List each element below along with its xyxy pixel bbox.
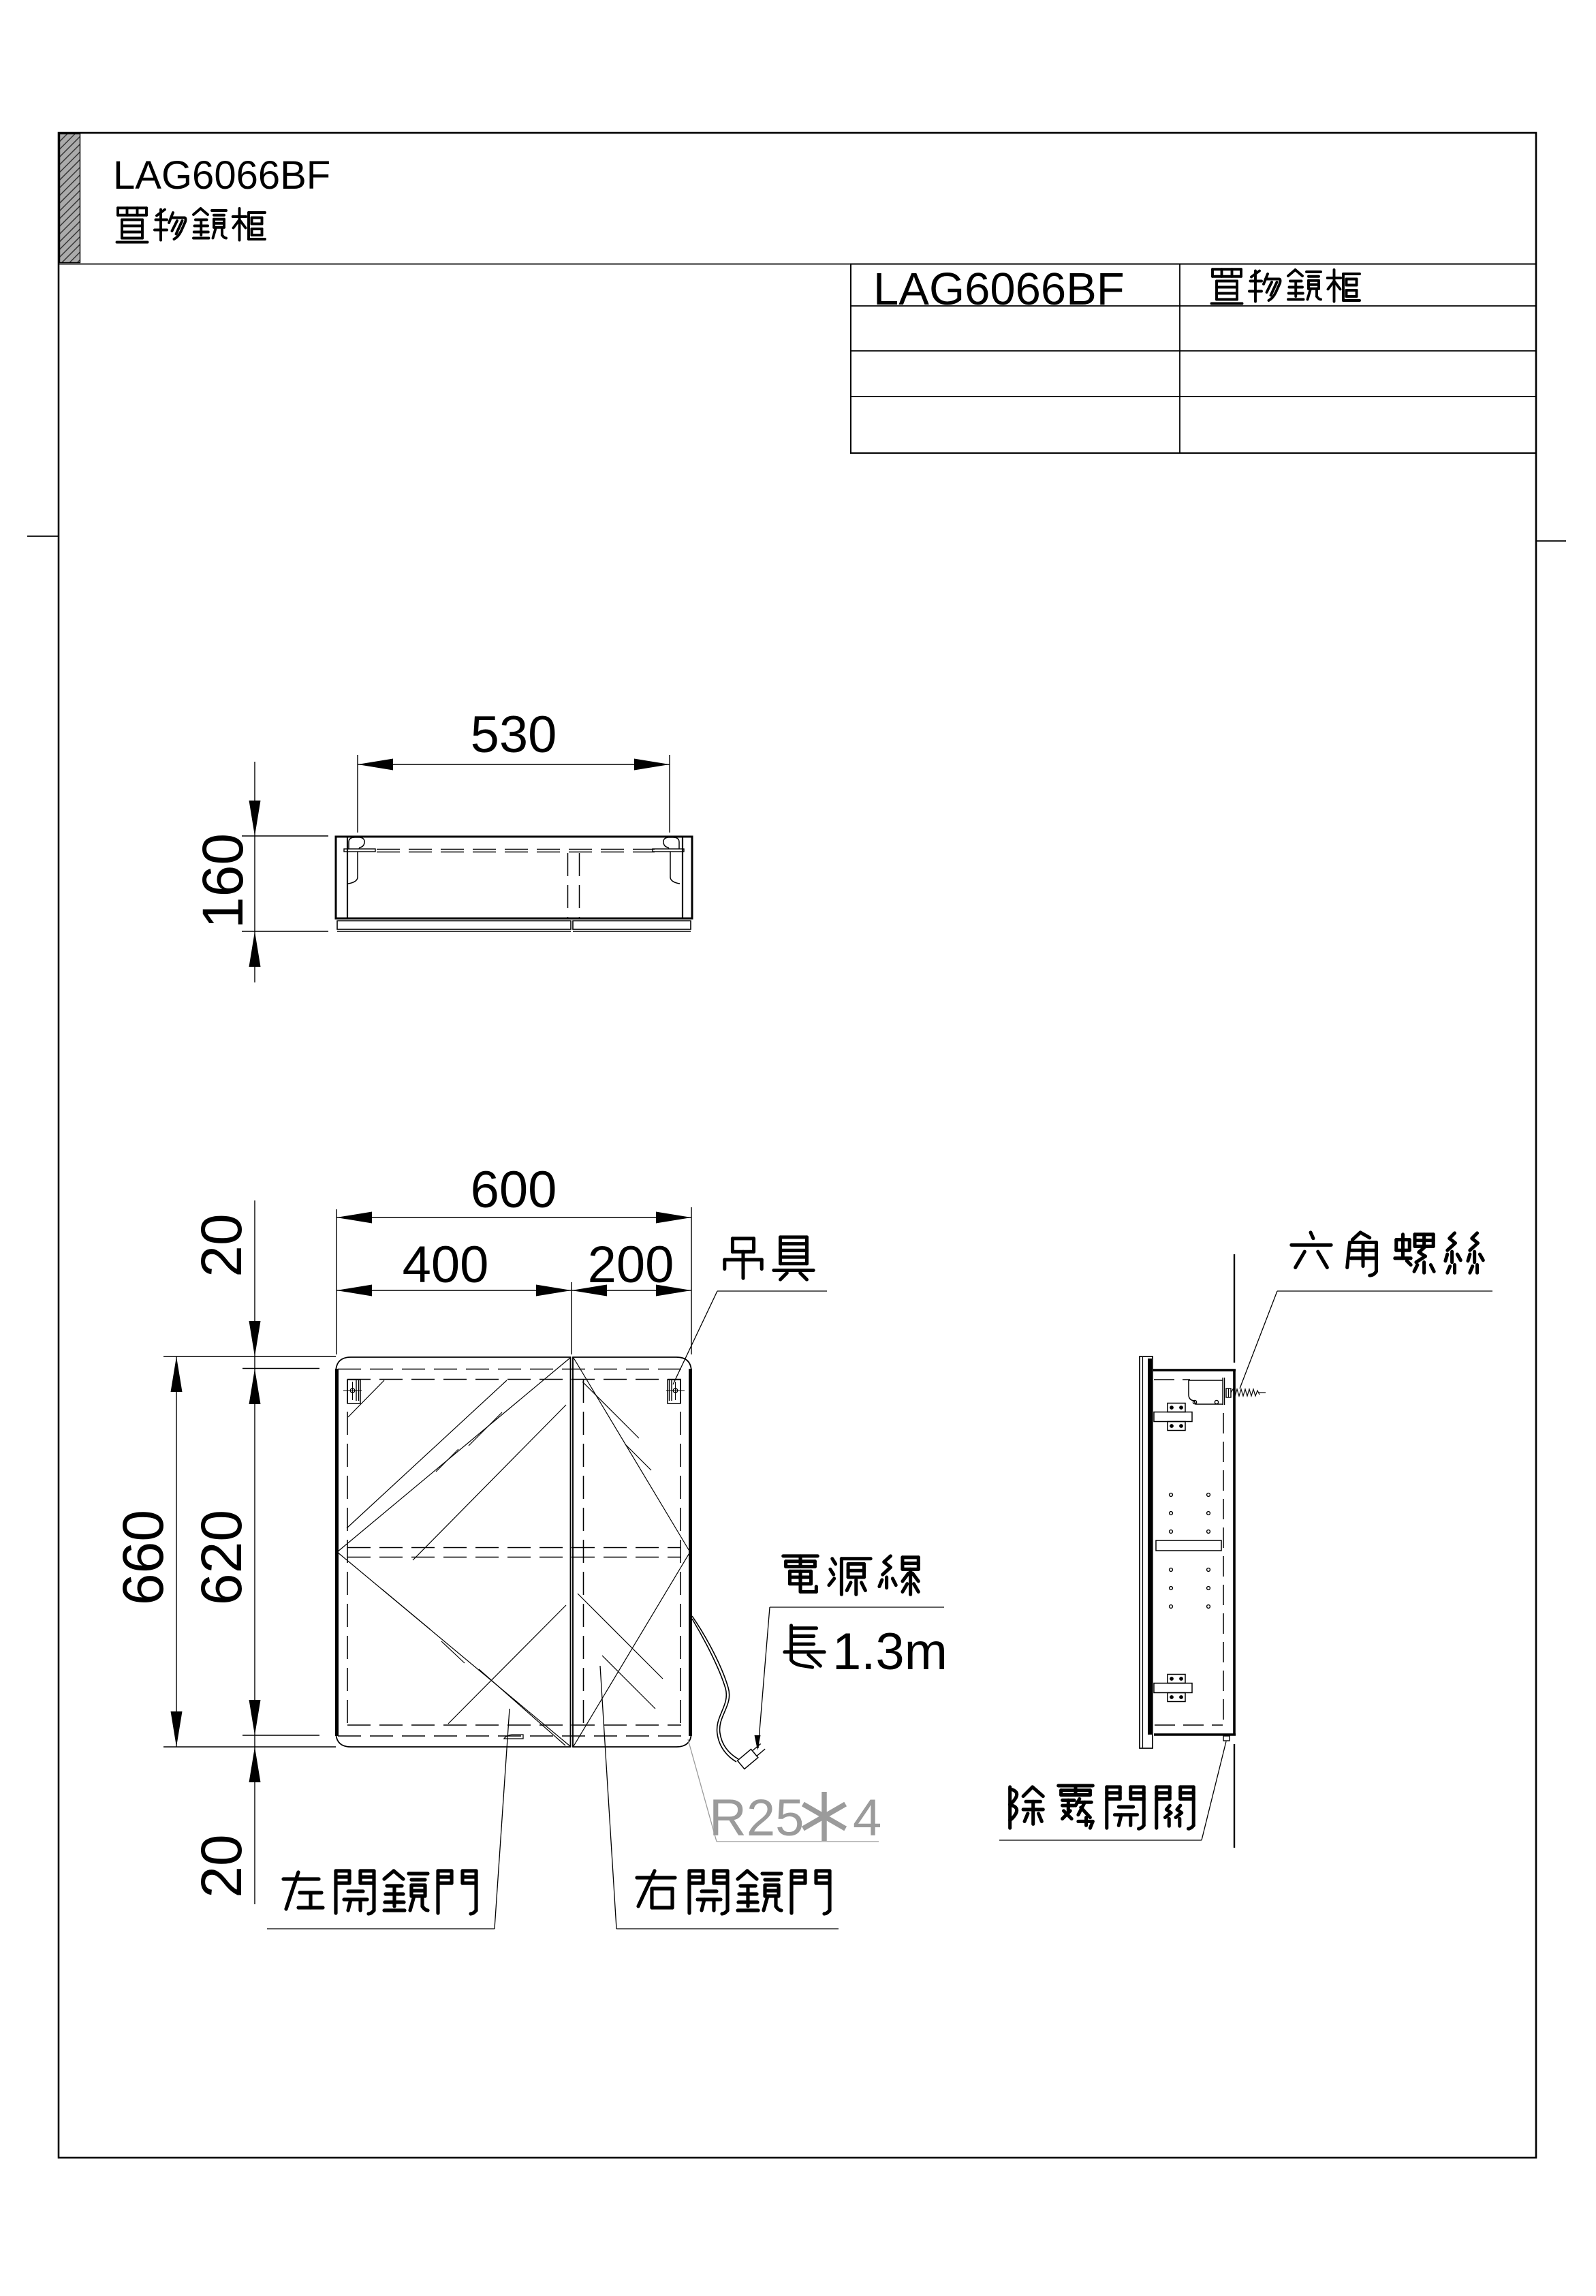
svg-text:4: 4 — [853, 1789, 881, 1847]
svg-text:200: 200 — [588, 1236, 674, 1294]
svg-text:400: 400 — [403, 1236, 489, 1294]
svg-text:620: 620 — [189, 1510, 253, 1605]
svg-text:530: 530 — [471, 706, 557, 764]
svg-text:LAG6066BF: LAG6066BF — [873, 264, 1125, 315]
svg-text:20: 20 — [189, 1213, 253, 1277]
svg-text:1.3m: 1.3m — [832, 1623, 948, 1681]
svg-text:LAG6066BF: LAG6066BF — [113, 153, 330, 198]
svg-text:R25: R25 — [709, 1789, 804, 1847]
svg-text:660: 660 — [111, 1510, 175, 1605]
svg-text:20: 20 — [189, 1834, 253, 1897]
svg-text:160: 160 — [191, 833, 255, 929]
svg-text:600: 600 — [471, 1161, 557, 1219]
